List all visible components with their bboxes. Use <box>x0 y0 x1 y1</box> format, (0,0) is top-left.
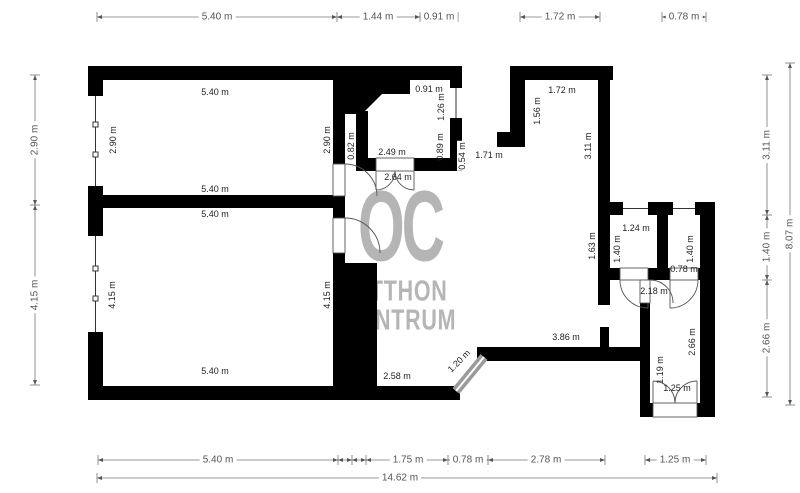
room2-height-left: 4.15 m <box>107 281 117 309</box>
room1-width-bottom: 5.40 m <box>201 184 229 194</box>
wc-height: 1.40 m <box>685 235 695 263</box>
room3-door-width: 1.25 m <box>663 383 691 393</box>
vestibule-width2: 2.64 m <box>384 172 412 182</box>
hall-width-bottom: 3.86 m <box>552 332 580 342</box>
passage-wall-width: 0.54 m <box>457 141 467 171</box>
dim-bottom-3: 0.78 m <box>450 455 487 466</box>
wc-width: 0.78 m <box>670 264 698 274</box>
room2-width-bottom: 5.40 m <box>201 366 229 376</box>
vestibule-width: 2.49 m <box>378 147 406 157</box>
room1-height-left: 2.90 m <box>108 126 118 154</box>
hall-height-left: 1.56 m <box>532 97 542 125</box>
vestibule-window-height: 1.26 m <box>436 93 446 121</box>
corridor-width: 2.58 m <box>383 371 411 381</box>
dim-right-2: 1.40 m <box>762 229 773 266</box>
dim-bottom-1: 5.40 m <box>200 455 237 466</box>
dim-bottom-5: 1.25 m <box>657 455 694 466</box>
room2-width-top: 5.40 m <box>201 209 229 219</box>
floor-plan: OC OTTHON CENTRUM <box>0 0 800 493</box>
room3-height: 2.66 m <box>687 328 697 356</box>
hall-width-top: 1.72 m <box>548 85 576 95</box>
room3-wall-seg: 1.19 m <box>655 356 665 384</box>
dim-top-1: 5.40 m <box>199 12 236 23</box>
room1-door-width: 0.82 m <box>346 132 356 160</box>
hall-wall-seg: 1.63 m <box>587 232 597 260</box>
dim-top-5: 0.78 m <box>666 12 703 23</box>
hall-height-right: 3.11 m <box>583 133 593 160</box>
dim-bottom-total: 14.62 m <box>379 473 421 484</box>
bath-height: 1.40 m <box>612 235 622 263</box>
dim-top-2: 1.44 m <box>360 12 397 23</box>
floor-plan-svg <box>0 0 800 493</box>
dim-left-2: 4.15 m <box>30 277 41 314</box>
passage-width: 1.71 m <box>475 150 503 160</box>
room2-height-right: 4.15 m <box>322 281 332 309</box>
room1-height-right: 2.90 m <box>322 126 332 154</box>
room1-width-top: 5.40 m <box>201 87 229 97</box>
dim-top-4: 1.72 m <box>542 12 579 23</box>
dim-bottom-4: 2.78 m <box>528 455 565 466</box>
corridor2-width: 2.18 m <box>640 286 668 296</box>
dim-right-1: 3.11 m <box>762 127 773 163</box>
bath-width: 1.24 m <box>622 223 650 233</box>
vestibule-wall-seg: 0.89 m <box>435 133 445 161</box>
dim-top-3: 0.91 m <box>421 12 458 23</box>
dim-right-total: 8.07 m <box>785 216 796 253</box>
dim-right-3: 2.66 m <box>762 320 773 357</box>
dim-left-1: 2.90 m <box>30 122 41 159</box>
dim-bottom-2: 1.75 m <box>390 455 427 466</box>
